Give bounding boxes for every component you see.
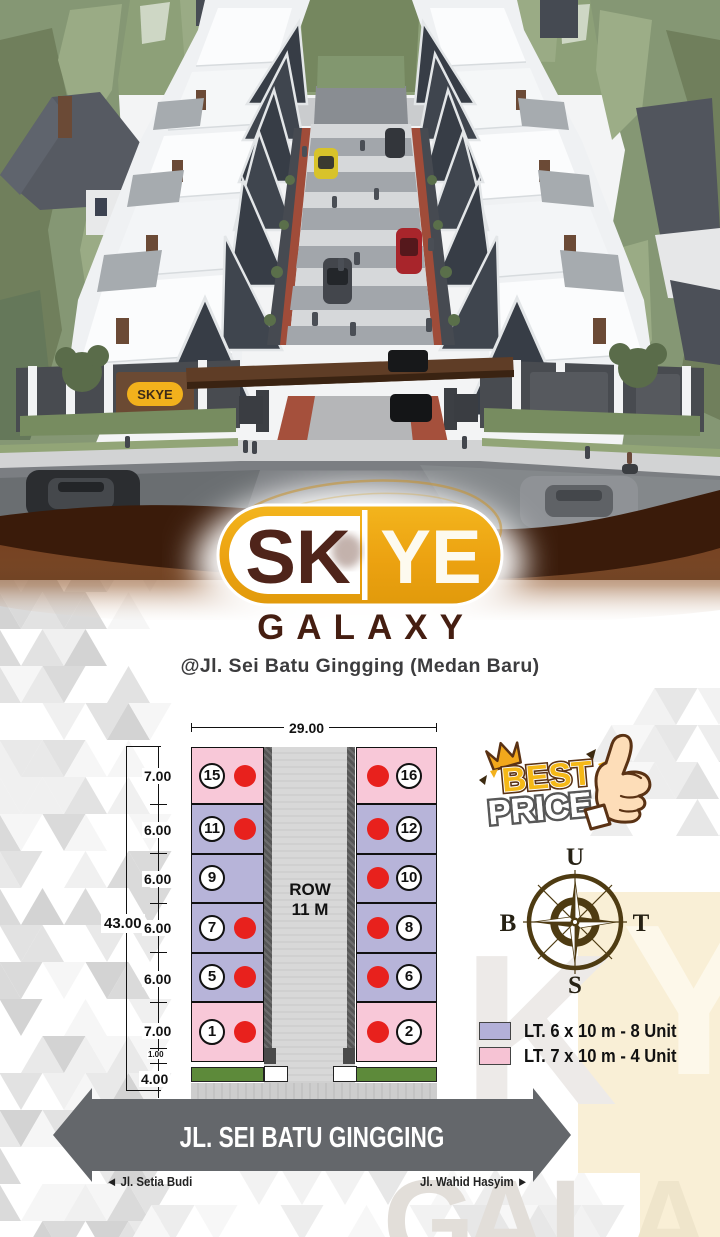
svg-text:U: U <box>566 844 584 871</box>
svg-text:T: T <box>633 910 650 937</box>
svg-text:S: S <box>568 972 582 999</box>
svg-text:YE: YE <box>380 515 481 600</box>
svg-text:B: B <box>500 910 517 937</box>
svg-text:SKYE: SKYE <box>137 387 173 402</box>
svg-text:PRICE: PRICE <box>486 786 593 833</box>
svg-text:SK: SK <box>245 515 351 600</box>
